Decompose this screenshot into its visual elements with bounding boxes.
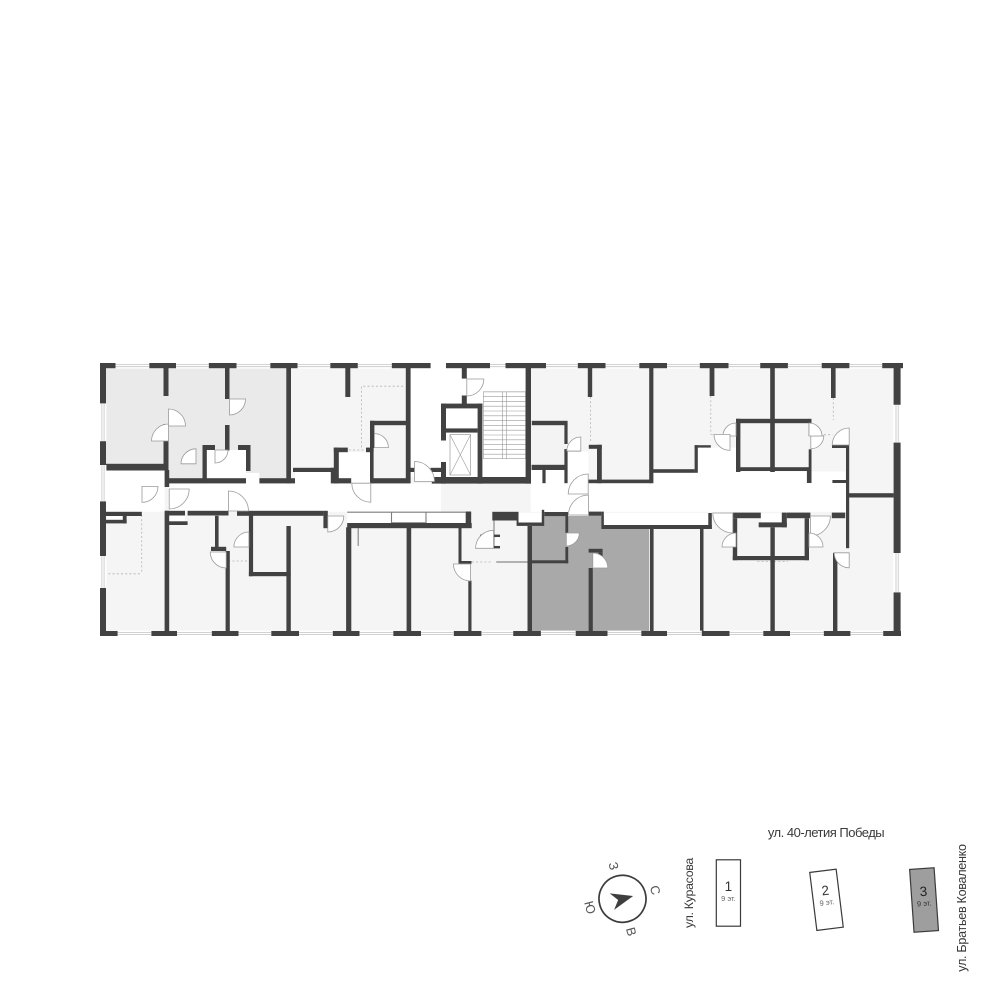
svg-text:9 эт.: 9 эт. [819,897,835,908]
svg-text:Ю: Ю [581,899,599,915]
svg-text:3: 3 [919,884,928,899]
svg-text:ул. 40-летия Победы: ул. 40-летия Победы [768,825,884,840]
svg-text:С: С [647,884,664,897]
svg-text:9 эт.: 9 эт. [721,894,736,903]
svg-text:9 эт.: 9 эт. [917,898,932,908]
svg-text:В: В [623,926,640,938]
svg-text:ул. Курасова: ул. Курасова [682,858,696,928]
svg-text:1: 1 [725,879,733,894]
svg-text:З: З [605,860,622,872]
svg-text:ул. Братьев Коваленко: ул. Братьев Коваленко [955,844,969,972]
